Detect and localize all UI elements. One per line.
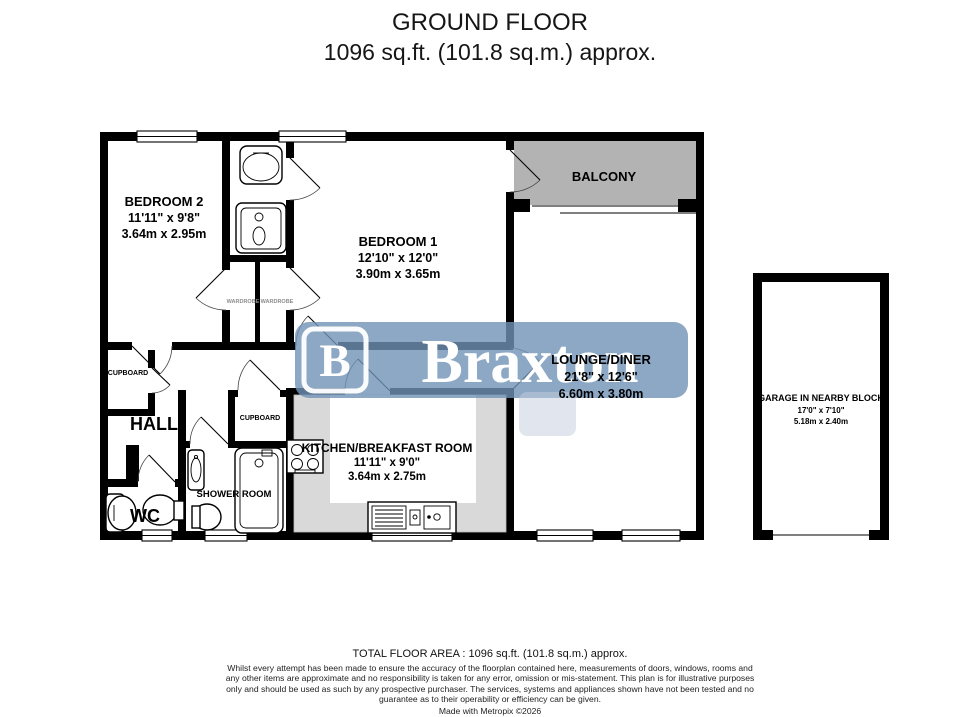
door-wardrobe-right [290,268,320,310]
svg-text:3.64m x 2.95m: 3.64m x 2.95m [122,227,207,241]
svg-text:21'8" x 12'6": 21'8" x 12'6" [564,370,637,384]
svg-text:B: B [319,335,350,387]
svg-text:17'0" x 7'10": 17'0" x 7'10" [798,406,845,415]
svg-text:BEDROOM 2: BEDROOM 2 [125,194,204,209]
garage-label: GARAGE IN NEARBY BLOCK 17'0" x 7'10" 5.1… [758,393,884,426]
footer: TOTAL FLOOR AREA : 1096 sq.ft. (101.8 sq… [0,648,980,716]
svg-text:11'11" x 9'0": 11'11" x 9'0" [354,457,420,469]
bedroom1-label: BEDROOM 1 12'10" x 12'0" 3.90m x 3.65m [356,234,441,281]
svg-text:5.18m x 2.40m: 5.18m x 2.40m [794,417,848,426]
cupboard-hall-label: CUPBOARD [108,370,148,377]
toilet-icon [192,504,221,530]
door-cupboard-hall [152,368,170,393]
svg-text:3.90m x 3.65m: 3.90m x 3.65m [356,267,441,281]
svg-text:BEDROOM 1: BEDROOM 1 [359,234,438,249]
kitchen-sink-icon [368,502,456,533]
svg-text:11'11" x 9'8": 11'11" x 9'8" [128,211,200,225]
metropix-credit: Made with Metropix ©2026 [0,706,980,716]
cupboard-inner-label: CUPBOARD [240,415,280,422]
window [279,131,346,142]
svg-text:12'10" x 12'0": 12'10" x 12'0" [358,251,438,265]
svg-text:6.60m x 3.80m: 6.60m x 3.80m [559,387,644,401]
balcony-label: BALCONY [572,169,637,184]
sink-icon [240,146,282,184]
door-ensuite [290,158,320,200]
door-cupboard-inner [238,360,280,390]
floorplan-svg: B Braxton BEDROOM 2 11'11" x 9'8" 3.64m … [0,0,980,717]
window [537,530,593,541]
lounge-label: LOUNGE/DINER 21'8" x 12'6" 6.60m x 3.80m [551,352,651,401]
window [137,131,197,142]
wc-label: WC [130,506,160,526]
svg-text:GARAGE IN NEARBY BLOCK: GARAGE IN NEARBY BLOCK [758,393,884,403]
svg-text:3.64m x 2.75m: 3.64m x 2.75m [348,471,426,483]
door-shower-room [190,417,228,444]
window [622,530,680,541]
sink-icon [188,450,204,490]
floorplan-page: GROUND FLOOR 1096 sq.ft. (101.8 sq.m.) a… [0,0,980,717]
svg-text:KITCHEN/BREAKFAST ROOM: KITCHEN/BREAKFAST ROOM [302,441,473,455]
svg-text:LOUNGE/DINER: LOUNGE/DINER [551,352,651,367]
bedroom2-label: BEDROOM 2 11'11" x 9'8" 3.64m x 2.95m [122,194,207,241]
total-floor-area: TOTAL FLOOR AREA : 1096 sq.ft. (101.8 sq… [0,648,980,660]
window [142,530,172,541]
hall-label: HALL [130,414,178,434]
shower-room-label: SHOWER ROOM [197,489,272,500]
shower-icon [236,203,286,253]
wardrobe-label: WARDROBE [227,299,260,305]
door-wardrobe-left [196,268,226,310]
wardrobe-label: WARDROBE [261,299,294,305]
disclaimer-text: Whilst every attempt has been made to en… [225,663,755,705]
door-wc [138,455,175,482]
